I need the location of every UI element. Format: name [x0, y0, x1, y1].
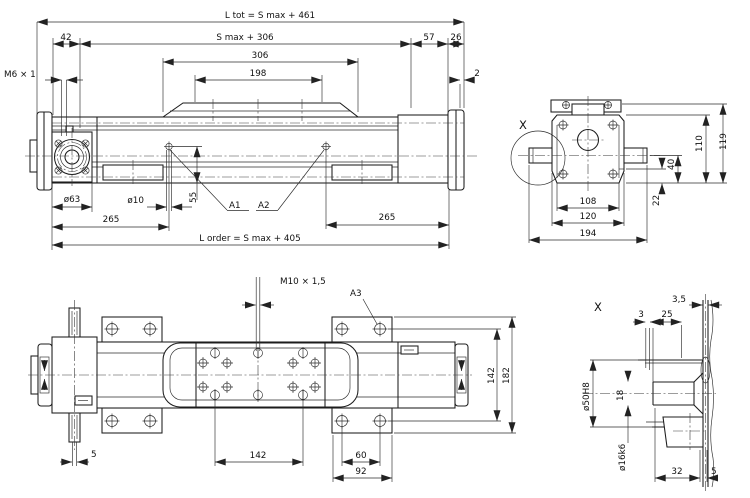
dim-32: 32: [671, 467, 682, 477]
dim-m6: M6 × 1: [4, 70, 36, 80]
dim-306: 306: [252, 51, 269, 61]
dim-5-key: 5: [91, 450, 97, 460]
detail-x-view: X: [582, 294, 722, 492]
dim-22: 22: [652, 195, 662, 206]
dim-3: 3: [638, 310, 644, 320]
dim-142-width: 142: [487, 367, 497, 384]
dim-3-5: 3,5: [672, 295, 686, 305]
dim-25: 25: [661, 310, 672, 320]
dim-198: 198: [250, 69, 267, 79]
dim-dia63: ø63: [64, 195, 81, 205]
dim-18: 18: [616, 390, 626, 401]
dim-dia16k6: ø16k6: [618, 443, 628, 471]
plan-view: M10 × 1,5 A3 5 142 60 92 142 182: [28, 277, 516, 482]
dim-142-holes: 142: [250, 451, 267, 461]
dim-194: 194: [580, 229, 597, 239]
dim-dia50h8: ø50H8: [582, 382, 592, 411]
dim-26: 26: [450, 33, 462, 43]
dim-m10: M10 × 1,5: [280, 277, 326, 287]
dim-57: 57: [423, 33, 434, 43]
side-view: L tot = S max + 461 S max + 306 42 57 26…: [4, 11, 480, 250]
dim-42: 42: [60, 33, 71, 43]
dim-l-tot: L tot = S max + 461: [225, 11, 315, 21]
drawing-canvas: L tot = S max + 461 S max + 306 42 57 26…: [0, 0, 750, 498]
carriage-side: [163, 103, 358, 117]
dim-2: 2: [474, 69, 480, 79]
detail-x-title: X: [594, 300, 602, 314]
label-a3: A3: [350, 289, 362, 299]
dim-smax-306: S max + 306: [216, 33, 274, 43]
dim-182: 182: [502, 367, 512, 384]
dim-55: 55: [189, 192, 199, 203]
dim-265-left: 265: [103, 215, 120, 225]
dim-l-order: L order = S max + 405: [199, 234, 300, 244]
technical-drawing: L tot = S max + 461 S max + 306 42 57 26…: [0, 0, 750, 498]
dim-119: 119: [719, 133, 729, 150]
dim-108: 108: [580, 197, 597, 207]
end-view: X 108 120 194 110 119 40 22: [511, 96, 729, 243]
dim-dia10: ø10: [127, 196, 144, 206]
carriage-plan: [163, 343, 358, 407]
dim-40: 40: [667, 158, 677, 170]
dim-92: 92: [355, 467, 366, 477]
foot-bracket: [663, 417, 703, 447]
dim-110: 110: [695, 135, 705, 152]
dim-60: 60: [355, 451, 367, 461]
end-block: [398, 115, 448, 183]
detail-view-dimensions: 3,5 3 25 ø50H8 18 ø16k6 32 5: [582, 295, 722, 482]
label-a2: A2: [258, 201, 270, 211]
dim-265-right: 265: [379, 213, 396, 223]
dim-5-gap: 5: [711, 467, 717, 477]
label-a1: A1: [229, 201, 241, 211]
dim-120: 120: [580, 212, 597, 222]
detail-x-marker: X: [519, 118, 527, 132]
